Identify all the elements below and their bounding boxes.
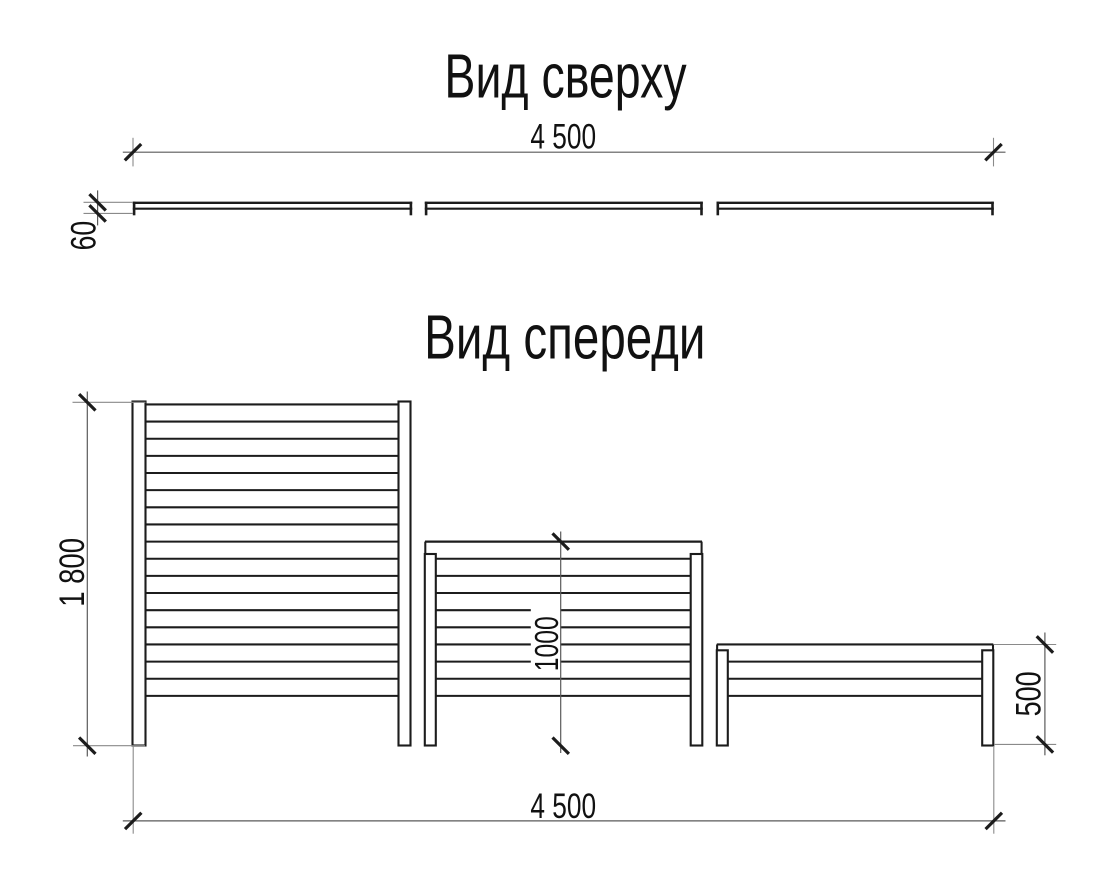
- svg-text:1 800: 1 800: [51, 538, 91, 607]
- svg-text:Вид спереди: Вид спереди: [424, 302, 705, 372]
- svg-text:Вид сверху: Вид сверху: [444, 41, 687, 111]
- svg-text:500: 500: [1008, 671, 1049, 716]
- svg-text:60: 60: [64, 221, 104, 251]
- svg-text:4 500: 4 500: [530, 786, 596, 826]
- svg-text:4 500: 4 500: [530, 116, 596, 156]
- svg-text:1000: 1000: [528, 616, 566, 671]
